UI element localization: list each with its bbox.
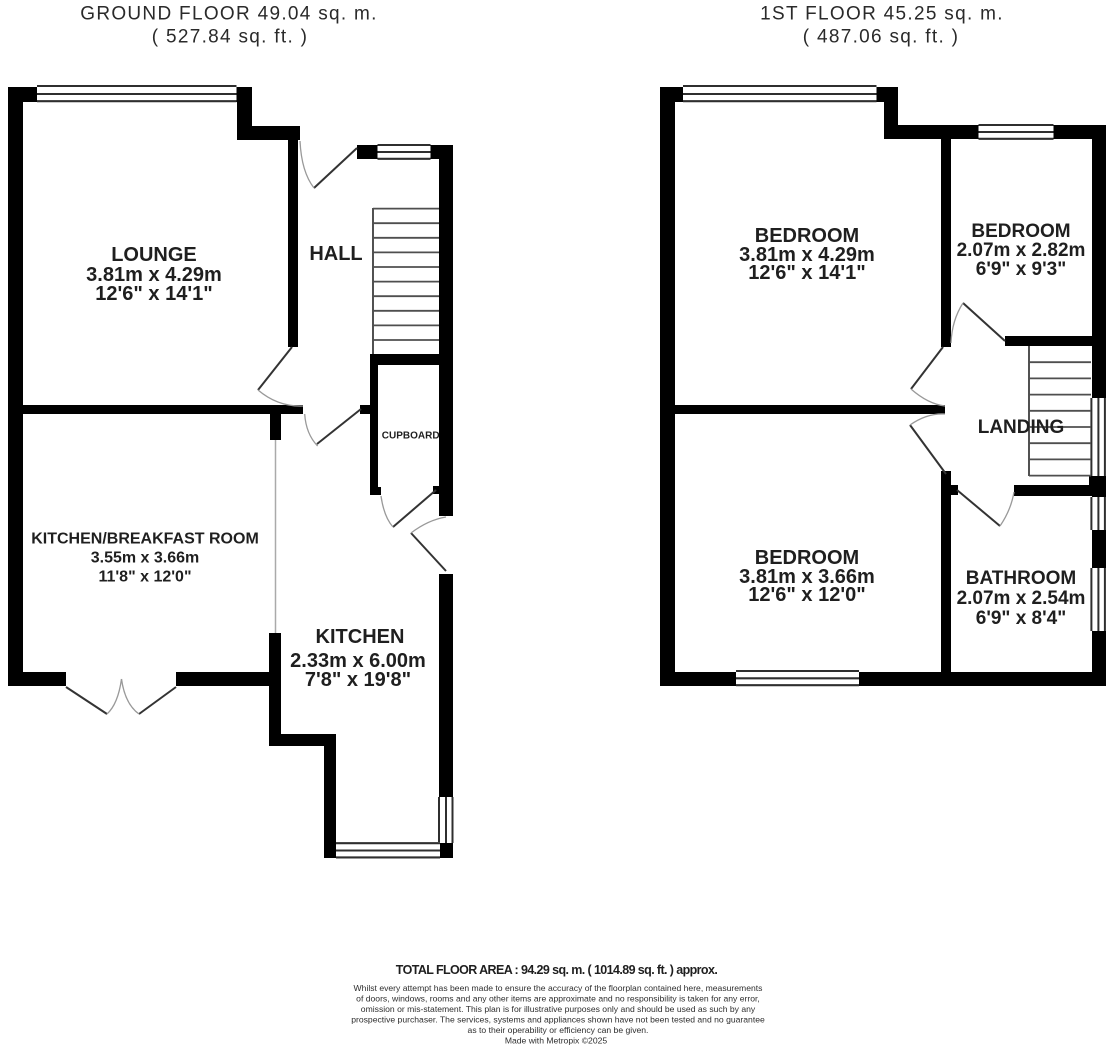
svg-text:TOTAL FLOOR AREA : 94.29 sq. m: TOTAL FLOOR AREA : 94.29 sq. m. ( 1014.8… (396, 963, 718, 977)
svg-text:2.07m x 2.54m: 2.07m x 2.54m (957, 588, 1086, 609)
svg-text:6'9" x 8'4": 6'9" x 8'4" (976, 608, 1066, 629)
svg-text:12'6" x 12'0": 12'6" x 12'0" (748, 584, 865, 606)
svg-text:LANDING: LANDING (978, 417, 1065, 438)
svg-text:KITCHEN/BREAKFAST ROOM: KITCHEN/BREAKFAST ROOM (31, 531, 259, 548)
svg-text:GROUND FLOOR 49.04 sq. m.: GROUND FLOOR 49.04 sq. m. (80, 4, 378, 25)
svg-text:KITCHEN: KITCHEN (316, 626, 405, 648)
svg-text:7'8" x 19'8": 7'8" x 19'8" (305, 669, 411, 691)
svg-text:( 487.06 sq. ft. ): ( 487.06 sq. ft. ) (803, 27, 959, 48)
svg-text:as to their operability or eff: as to their operability or efficiency ca… (468, 1025, 649, 1035)
svg-text:Made with Metropix ©2025: Made with Metropix ©2025 (505, 1036, 608, 1046)
svg-text:( 527.84 sq. ft. ): ( 527.84 sq. ft. ) (152, 27, 308, 48)
svg-text:1ST FLOOR 45.25 sq. m.: 1ST FLOOR 45.25 sq. m. (760, 4, 1004, 25)
svg-text:Whilst every attempt has been: Whilst every attempt has been made to en… (354, 983, 763, 993)
svg-text:BATHROOM: BATHROOM (966, 568, 1076, 589)
svg-text:omission or mis-statement. Thi: omission or mis-statement. This plan is … (361, 1004, 756, 1014)
svg-text:2.07m x 2.82m: 2.07m x 2.82m (957, 240, 1086, 261)
svg-text:12'6" x 14'1": 12'6" x 14'1" (95, 283, 212, 305)
svg-text:11'8" x 12'0": 11'8" x 12'0" (98, 568, 191, 585)
svg-text:12'6" x 14'1": 12'6" x 14'1" (748, 262, 865, 284)
svg-text:6'9" x 9'3": 6'9" x 9'3" (976, 259, 1066, 280)
svg-text:BEDROOM: BEDROOM (971, 221, 1070, 242)
svg-text:prospective purchaser. The ser: prospective purchaser. The services, sys… (351, 1015, 765, 1025)
svg-text:3.55m x 3.66m: 3.55m x 3.66m (91, 549, 200, 566)
svg-text:CUPBOARD: CUPBOARD (382, 431, 440, 442)
svg-text:of doors, windows, rooms and a: of doors, windows, rooms and any other i… (356, 994, 760, 1004)
svg-text:HALL: HALL (309, 243, 362, 265)
svg-text:LOUNGE: LOUNGE (111, 244, 197, 266)
